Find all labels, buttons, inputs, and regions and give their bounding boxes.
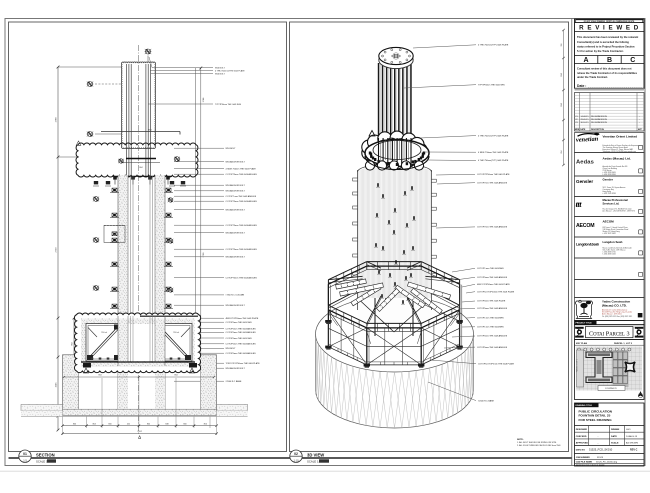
svg-text:COTOP5mm THK G&S ANGLES: COTOP5mm THK G&S ANGLES: [477, 307, 508, 310]
svg-text:relieve the Trade Contracto: relieve the Trade Contractor of its resp…: [577, 71, 638, 75]
svg-text:3D VIEW: 3D VIEW: [307, 453, 324, 458]
svg-text:Date :: Date :: [577, 84, 586, 88]
svg-text:FOUNTAIN 25: FOUNTAIN 25: [605, 387, 617, 390]
svg-text:Gensler: Gensler: [603, 178, 614, 182]
svg-text:Langdon&Seah: Langdon&Seah: [576, 243, 599, 247]
svg-text:356: 356: [561, 44, 563, 47]
svg-text:Venetian Orient Limited: Venetian Orient Limited: [603, 135, 638, 139]
svg-text:NOTE:: NOTE:: [517, 439, 524, 441]
svg-text:DESIGNED: DESIGNED: [576, 429, 588, 431]
svg-text:W16 ANCHOR BOLT: W16 ANCHOR BOLT: [226, 304, 246, 307]
svg-text:W16 ANCHOR BOLT: W16 ANCHOR BOLT: [226, 256, 246, 259]
svg-text:COTOP75mm THK G&S ANGLES: COTOP75mm THK G&S ANGLES: [226, 248, 258, 251]
svg-text:864: 864: [98, 375, 101, 377]
svg-text:W16 ANCHOR BOLT: W16 ANCHOR BOLT: [226, 231, 246, 234]
svg-text:MRK: MRK: [575, 129, 580, 131]
svg-text:venetian: venetian: [576, 136, 599, 144]
svg-text:W16 BOLT: W16 BOLT: [215, 73, 226, 75]
svg-text:Consultant(s) and is accord: Consultant(s) and is accorded the folloi…: [577, 40, 629, 44]
svg-text:DATE: DATE: [580, 128, 586, 131]
svg-text:#2500 R.C BASE: #2500 R.C BASE: [478, 399, 494, 402]
svg-text:COTOP5mm THK G&S ANGLES: COTOP5mm THK G&S ANGLES: [477, 346, 508, 349]
svg-text:30-10-15: 30-10-15: [581, 122, 590, 124]
svg-text:W16 BOLT: W16 BOLT: [226, 348, 237, 350]
svg-text:COTOP/COTOP50mm THK G&S PLAT: COTOP/COTOP50mm THK G&S PLATE: [477, 290, 515, 293]
svg-text:W16 ANCHOR BOLT: W16 ANCHOR BOLT: [226, 209, 246, 212]
svg-text:14-AUG-15: 14-AUG-15: [626, 435, 638, 438]
svg-text:1788: 1788: [56, 117, 58, 123]
svg-text:4M/COTOP50mm THK G&S PLATE: 4M/COTOP50mm THK G&S PLATE: [477, 283, 510, 286]
svg-text:1:10: 1:10: [293, 459, 299, 463]
svg-text:RE-SUBMISSION: RE-SUBMISSION: [591, 119, 608, 121]
svg-text:PARCEL 1, LOT 2: PARCEL 1, LOT 2: [614, 342, 633, 345]
svg-text:SCALE: SCALE: [611, 442, 619, 445]
svg-text:800: 800: [108, 423, 111, 425]
svg-text:LHO: LHO: [626, 429, 631, 431]
svg-text:REPRODUCED DUB FILE NAME: REPRODUCED DUB FILE NAME: [576, 464, 606, 467]
svg-text:848: 848: [165, 423, 168, 425]
svg-text:800: 800: [147, 423, 150, 425]
svg-text:5.4 for action by the Tra: 5.4 for action by the Trade Contractor.: [577, 49, 624, 53]
svg-text:Aedas (Macau) Ltd.: Aedas (Macau) Ltd.: [603, 157, 632, 161]
svg-text:FOR STEEL DRAWING: FOR STEEL DRAWING: [579, 418, 613, 422]
svg-text:JOB NUMBER: JOB NUMBER: [576, 457, 590, 459]
svg-text:AECOM: AECOM: [603, 220, 615, 224]
svg-text:800: 800: [183, 423, 186, 425]
svg-text:14-08-15: 14-08-15: [581, 116, 590, 118]
svg-text:COTOP/COTOP5mm THK G&S PLATE: COTOP/COTOP5mm THK G&S PLATE: [478, 362, 515, 365]
svg-text:COTAI PARCEL 3: COTAI PARCEL 3: [589, 330, 630, 337]
svg-text:W16 ANCHOR BOLT: W16 ANCHOR BOLT: [226, 190, 246, 193]
svg-text:COTOP75mm THK G&S ANGLES: COTOP75mm THK G&S ANGLES: [226, 173, 258, 176]
svg-text:4 THK 750mm(TYP) G&S PLATE: 4 THK 750mm(TYP) G&S PLATE: [478, 44, 509, 47]
svg-text:DWG NO: DWG NO: [576, 450, 586, 452]
svg-text:864: 864: [174, 375, 177, 377]
svg-text:R E V I E W E D: R E V I E W E D: [579, 25, 639, 32]
svg-text:status referred to in Projec: status referred to in Project Procedure …: [577, 44, 635, 48]
svg-text:This document has been rev: This document has been reviewed by the r…: [577, 35, 638, 39]
svg-text:DRAWN: DRAWN: [611, 428, 620, 431]
svg-text:A,B,C Macau t. 2875 3311: A,B,C Macau t. 2875 3311: [602, 313, 622, 316]
svg-text:KEY PLAN: KEY PLAN: [576, 342, 587, 345]
svg-text:t +852 2599 8788: t +852 2599 8788: [603, 192, 616, 195]
svg-text:864: 864: [139, 167, 142, 169]
svg-text:COTOP5mm THK G&S SHS: COTOP5mm THK G&S SHS: [226, 338, 253, 340]
svg-text:452: 452: [127, 423, 130, 425]
svg-text:Services Ltd.: Services Ltd.: [603, 201, 620, 205]
svg-text:COTOP5mm THK G&S ANGLES: COTOP5mm THK G&S ANGLES: [477, 335, 508, 338]
svg-text:Macau Professional: Macau Professional: [603, 198, 628, 202]
svg-text:1:5: 1:5: [23, 459, 27, 463]
svg-text:02: 02: [294, 452, 298, 456]
svg-text:REV C: REV C: [630, 449, 638, 452]
svg-text:f +853 2833 1532: f +853 2833 1532: [603, 254, 616, 256]
svg-text:COTOP5mm THK G&S ANGLES: COTOP5mm THK G&S ANGLES: [226, 352, 257, 355]
svg-text:2. ALL FILLET WELDED SHOULD BE: 2. ALL FILLET WELDED SHOULD BE 3mm THK.: [517, 444, 561, 447]
svg-text:854: 854: [561, 151, 563, 154]
svg-text:Consultant review of this: Consultant review of this document does …: [577, 67, 632, 71]
svg-text:1340: 1340: [561, 103, 563, 107]
svg-text:W16 BOLT: W16 BOLT: [215, 67, 226, 69]
svg-text:COTOP/TP50mm THK G&S PLATE: COTOP/TP50mm THK G&S PLATE: [477, 173, 510, 176]
svg-text:COTOP75mm THK G&S ANGLES: COTOP75mm THK G&S ANGLES: [226, 277, 258, 280]
svg-text:COTOP5mm THK G&S ANGLES: COTOP5mm THK G&S ANGLES: [226, 331, 257, 334]
svg-text:COTOP5mm THK G&S ANGLES: COTOP5mm THK G&S ANGLES: [226, 343, 257, 346]
svg-text:# 850 R.C COLUMN: # 850 R.C COLUMN: [226, 295, 245, 297]
svg-text:DATE: DATE: [611, 435, 617, 438]
svg-text:COTOP5mm THK G&S ANGLES: COTOP5mm THK G&S ANGLES: [226, 327, 257, 330]
svg-text:4 SIDE 750mm THK G&S PLATE: 4 SIDE 750mm THK G&S PLATE: [226, 168, 257, 171]
svg-text:2700: 2700: [56, 247, 58, 253]
svg-text:TYP/TP/6mm THK G&S SHS: TYP/TP/6mm THK G&S SHS: [215, 104, 242, 106]
svg-text:28-09-15: 28-09-15: [581, 119, 590, 121]
svg-text:CHECKED: CHECKED: [576, 436, 587, 438]
svg-text:W16 BOLT: W16 BOLT: [226, 148, 237, 150]
svg-text:AS SHOWN: AS SHOWN: [626, 442, 638, 445]
svg-text:DRAWING TITLE: DRAWING TITLE: [576, 404, 593, 407]
svg-text:RE-SUBMISSION: RE-SUBMISSION: [591, 122, 608, 124]
svg-text:W16 ANCHOR BOLT: W16 ANCHOR BOLT: [226, 367, 246, 370]
svg-text:COTOP7mm THK G&S ANGLES: COTOP7mm THK G&S ANGLES: [477, 181, 508, 184]
svg-text:CAD FILE NAME: CAD FILE NAME: [576, 461, 593, 464]
svg-text:DESCRIPTION: DESCRIPTION: [591, 129, 605, 131]
svg-text:4M/COTOP50mm THK G&S PLATE: 4M/COTOP50mm THK G&S PLATE: [226, 317, 259, 320]
svg-text:51525_FD_25000.dwg: 51525_FD_25000.dwg: [596, 462, 618, 464]
svg-text:COTOP5 mm THK G&S/SHS: COTOP5 mm THK G&S/SHS: [477, 268, 504, 270]
svg-text:1. ALL BOLT SHOULD BE FIXING O: 1. ALL BOLT SHOULD BE FIXING ON SITE.: [517, 441, 557, 444]
svg-text:TOP/COTOP50mm THK G&S PLATE: TOP/COTOP50mm THK G&S PLATE: [226, 362, 261, 365]
svg-text:(Macau) CO. LTD.: (Macau) CO. LTD.: [602, 303, 627, 307]
svg-text:800: 800: [204, 423, 207, 425]
svg-text:COTOP75mm THK G&S ANGLES: COTOP75mm THK G&S ANGLES: [226, 224, 258, 227]
svg-text:under the Trade Contract.: under the Trade Contract.: [577, 75, 608, 79]
svg-text:4 THK 750mm(TYP) G&S PLATE: 4 THK 750mm(TYP) G&S PLATE: [478, 159, 509, 162]
svg-text:W16 ANCHOR BOLT: W16 ANCHOR BOLT: [226, 184, 246, 187]
svg-text:800: 800: [73, 423, 76, 425]
svg-text:Gensler: Gensler: [576, 179, 593, 184]
svg-text:01: 01: [23, 452, 27, 456]
svg-text:SECTION: SECTION: [36, 453, 55, 458]
svg-text:Aedas: Aedas: [576, 160, 594, 166]
svg-text:APPROVED: APPROVED: [576, 442, 589, 445]
svg-text:4 THK 750mm(TYP) G&S PLATE: 4 THK 750mm(TYP) G&S PLATE: [478, 134, 509, 137]
svg-text:864: 864: [93, 423, 96, 425]
svg-text:COTOP5 mm THK G&S/SHS: COTOP5 mm THK G&S/SHS: [477, 317, 504, 319]
svg-text:1340: 1340: [561, 73, 563, 77]
svg-text:COTOP75mm THK G&S ANGLES: COTOP75mm THK G&S ANGLES: [226, 200, 258, 203]
svg-text:#2500 R.C BASE: #2500 R.C BASE: [226, 380, 242, 383]
svg-text:COTOP5mm THK G&S ANGLES: COTOP5mm THK G&S ANGLES: [477, 276, 508, 279]
svg-text:COTOP5 mm THK G&S/SHS: COTOP5 mm THK G&S/SHS: [477, 327, 504, 329]
svg-text:COTOP7 mm THK G&S ANGLES: COTOP7 mm THK G&S ANGLES: [226, 195, 257, 198]
svg-text:Langdon Seah: Langdon Seah: [603, 240, 623, 244]
svg-text:COTOP5mm THK G&S PLATE: COTOP5mm THK G&S PLATE: [477, 300, 506, 303]
svg-text:A-C Macau t. +853 2878 2876: A-C Macau t. +853 2878 2876 f. 2878 7375: [603, 210, 635, 213]
svg-text:AECOM: AECOM: [576, 223, 594, 229]
svg-text:RE-SUBMISSION: RE-SUBMISSION: [591, 116, 608, 118]
svg-text:COTOP7mm THK G&S ANGLES: COTOP7mm THK G&S ANGLES: [477, 226, 508, 229]
svg-text:51525_FCD_SK010: 51525_FCD_SK010: [589, 448, 613, 452]
svg-text:W16 ANCHOR BOLT: W16 ANCHOR BOLT: [226, 161, 246, 164]
svg-text:51525: 51525: [597, 457, 604, 459]
svg-text:4 SIDE 750mm THK G&S PLATE: 4 SIDE 750mm THK G&S PLATE: [478, 151, 509, 154]
svg-text:1545: 1545: [56, 382, 58, 388]
svg-text:Tel: (853) 2875 3311 Fax: (85: Tel: (853) 2875 3311 Fax: (853) 2875 331…: [602, 316, 632, 318]
svg-text:4 THK 750mm(TYP) G&S PLATE: 4 THK 750mm(TYP) G&S PLATE: [215, 69, 245, 72]
svg-text:TYP/TP/6mm THK G&S SHS: TYP/TP/6mm THK G&S SHS: [478, 84, 505, 86]
svg-text:t +852 3922 9000: t +852 3922 9000: [603, 232, 616, 235]
svg-text:COTOP5mm THK G&S SHS: COTOP5mm THK G&S SHS: [226, 322, 253, 324]
